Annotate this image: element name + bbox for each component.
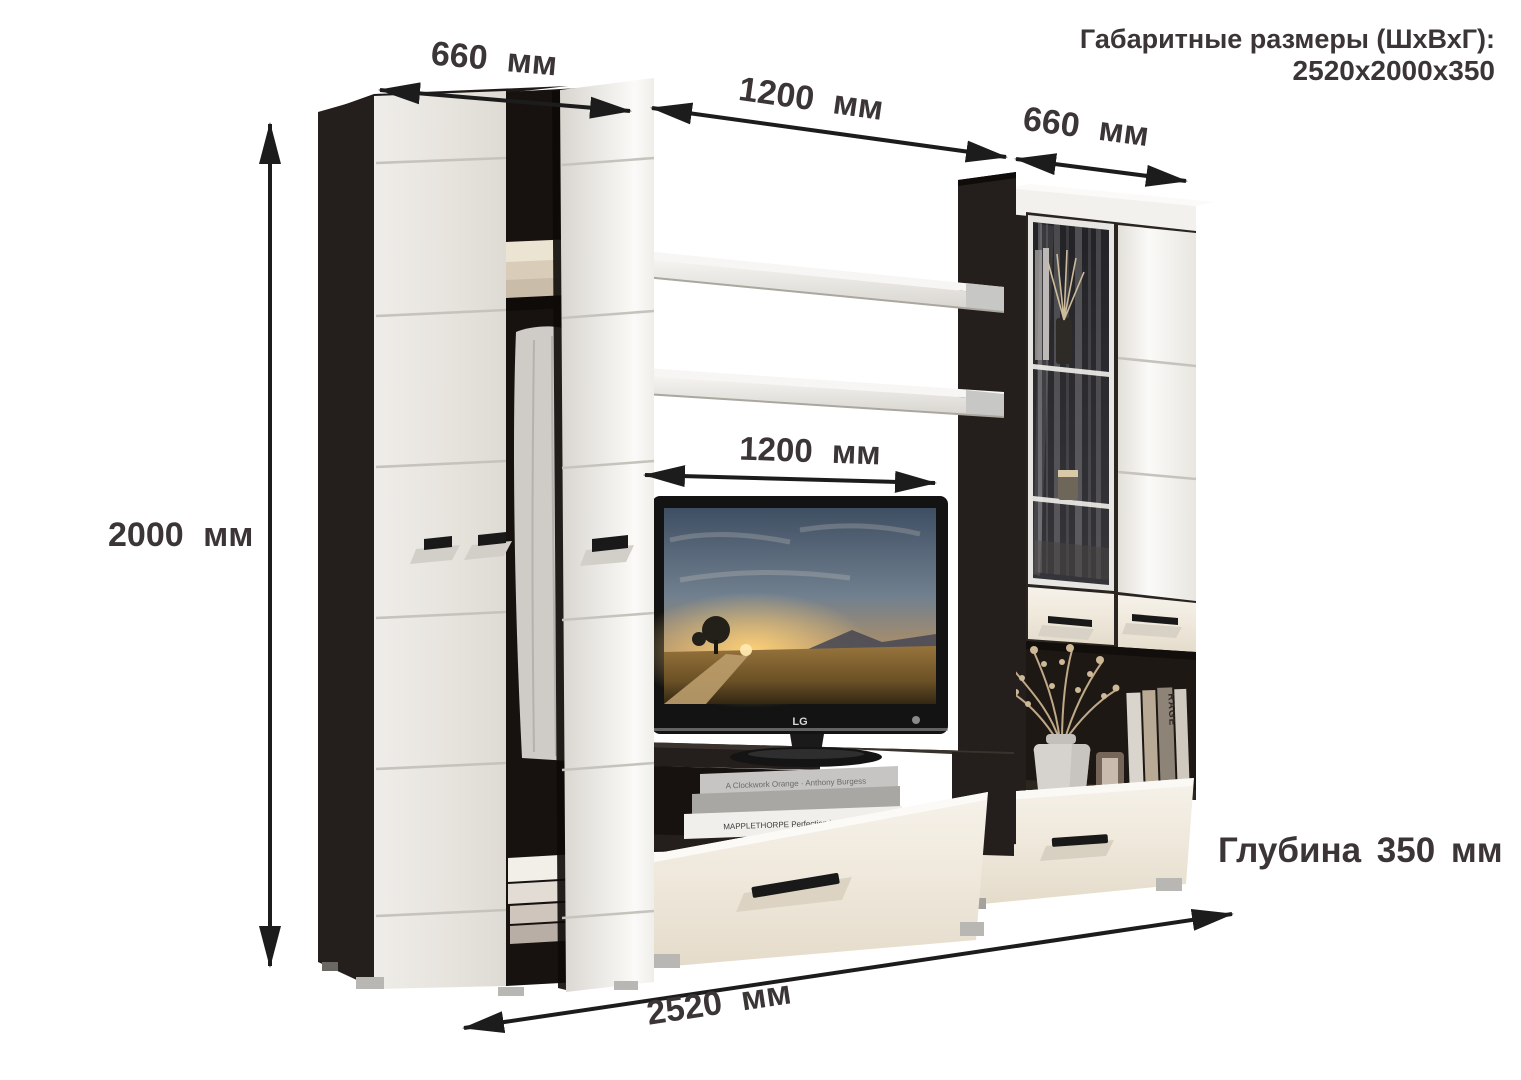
shelf-metal-cap bbox=[966, 283, 1004, 312]
wall-shelf-lower bbox=[645, 368, 1004, 417]
dim-label-height: 2000 мм bbox=[108, 516, 258, 555]
tv-unit: A Clockwork Orange · Anthony Burgess MAP… bbox=[632, 172, 1016, 968]
tree-trunk bbox=[714, 640, 718, 654]
arrow-tv-niche-width bbox=[645, 475, 935, 483]
wardrobe-door-closed bbox=[374, 91, 512, 989]
middle-upright-panel bbox=[958, 172, 1016, 852]
wardrobe bbox=[318, 78, 654, 996]
bezel-chrome-strip bbox=[652, 728, 948, 731]
depth-label: Глубина 350 мм bbox=[1218, 831, 1503, 871]
wardrobe-foot bbox=[614, 981, 638, 990]
header-line2: 2520x2000x350 bbox=[1080, 55, 1495, 86]
unit-foot bbox=[654, 954, 680, 968]
tv-stand-highlight bbox=[748, 749, 864, 759]
tv-brand-logo: LG bbox=[792, 716, 807, 728]
arrow-right-section-width bbox=[1016, 159, 1186, 181]
tv-power-light bbox=[912, 716, 920, 724]
bush bbox=[692, 632, 706, 646]
wardrobe-foot bbox=[498, 987, 524, 996]
wall-shelf-upper bbox=[645, 251, 1004, 312]
wardrobe-foot bbox=[356, 977, 384, 989]
wardrobe-side-panel bbox=[318, 96, 374, 988]
glass-door bbox=[1028, 215, 1114, 595]
overall-dimensions-header: Габаритные размеры (ШхВхГ): 2520x2000x35… bbox=[1080, 24, 1495, 86]
sun bbox=[740, 644, 752, 656]
wardrobe-foot bbox=[322, 962, 338, 971]
wardrobe-door-open bbox=[552, 78, 654, 992]
tv: LG bbox=[632, 496, 948, 767]
shelf-metal-cap bbox=[966, 390, 1004, 417]
header-line1: Габаритные размеры (ШхВхГ): bbox=[1080, 24, 1495, 55]
unit-foot bbox=[960, 922, 984, 936]
tree-silhouette bbox=[702, 616, 730, 644]
product-dimension-diagram: RAGE bbox=[0, 0, 1521, 1080]
cabinet-white-door bbox=[1118, 225, 1196, 601]
cabinet-foot bbox=[1156, 878, 1182, 891]
